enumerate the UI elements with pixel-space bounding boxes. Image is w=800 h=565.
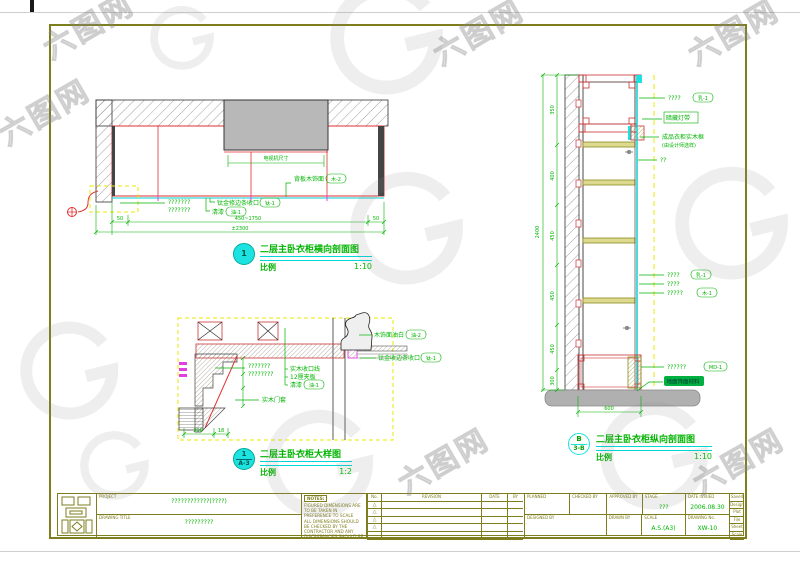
d3-leaders bbox=[637, 98, 665, 391]
d1-dim-total: ±2300 bbox=[232, 226, 249, 232]
d3-label-r1: ???? bbox=[668, 95, 681, 102]
d2-label-white-paint: 木饰面油白 bbox=[374, 331, 404, 339]
d2-label-door-frame: 实木门套 bbox=[262, 396, 286, 404]
rev-col-by: BY bbox=[507, 494, 523, 502]
cabinet-shelves bbox=[583, 142, 635, 303]
d2-lumber-xbox bbox=[198, 322, 278, 340]
designed-by-label: DESIGNED BY bbox=[525, 515, 606, 520]
d2-label-titanium: 钛金收边条收口 bbox=[378, 354, 420, 362]
stage-value: ??? bbox=[643, 505, 685, 511]
d1-bubble-number: 1 bbox=[241, 250, 247, 258]
d1-label-q1: ??????? bbox=[168, 199, 190, 206]
meta-row-5: Sheet bbox=[730, 524, 744, 532]
page-bottom-edge bbox=[0, 551, 800, 552]
drawing-3-vertical-section: 2400 350 400 450 450 450 300 ???? 乳-1 暗藏… bbox=[525, 60, 775, 480]
planned-label: PLANNED bbox=[525, 494, 569, 499]
company-logo bbox=[58, 494, 96, 537]
drawing-1-horizontal-section: 电视机尺寸 ??????? ??????? 钛金修边条收口 钛-1 清漆 油-1… bbox=[60, 95, 400, 265]
checked-label: CHECKED BY bbox=[570, 494, 606, 499]
d2-title-underline bbox=[260, 461, 352, 466]
d3-label-r8: ?????? bbox=[667, 364, 686, 371]
d3-label-floor-finish: 地面饰面材料 bbox=[667, 378, 701, 386]
d3-bubble-ref: 3-B bbox=[573, 446, 584, 452]
meta-row-4: File No. bbox=[730, 517, 744, 525]
project-value: ????????????(????) bbox=[97, 499, 301, 505]
fold-mark bbox=[30, 0, 34, 12]
d2-wall-lines bbox=[333, 318, 345, 440]
d3-label-r7: ????? bbox=[667, 290, 683, 297]
rev-col-revision: REVISION bbox=[381, 494, 481, 502]
meta-row-1: Saved By bbox=[730, 494, 744, 502]
rev-col-date: DATE bbox=[481, 494, 507, 502]
d3-dim-seg2: 400 bbox=[550, 171, 556, 181]
notes-label: NOTES: bbox=[304, 495, 327, 502]
meta-row-6: Scale bbox=[730, 532, 744, 540]
d2-tag-white-paint: 油-2 bbox=[411, 332, 421, 339]
d1-dim-left: 50 bbox=[117, 216, 123, 222]
d3-title-underline bbox=[596, 446, 712, 451]
d3-label-light: 暗藏灯带 bbox=[666, 114, 690, 122]
d2-tag-lacquer: 油-1 bbox=[309, 382, 319, 389]
file-meta-rows: Saved By Design Plot Date File No. Sheet… bbox=[729, 494, 744, 537]
d1-scale-value: 1:10 bbox=[354, 262, 372, 273]
d3-dim-seg5: 450 bbox=[550, 344, 556, 354]
date-issued-label: DATE ISSUED bbox=[686, 494, 729, 499]
d1-title-text: 二层主卧衣柜横向剖面图 bbox=[260, 242, 372, 255]
meta-row-2: Design bbox=[730, 502, 744, 510]
cad-sheet: 电视机尺寸 ??????? ??????? 钛金修边条收口 钛-1 清漆 油-1… bbox=[0, 0, 800, 565]
d2-dim-b: 18 bbox=[218, 428, 224, 434]
notes-cell: NOTES: FIGURED DIMENSIONS ARE TO BE TAKE… bbox=[301, 494, 366, 537]
d3-label-r6: ???? bbox=[667, 281, 680, 288]
d2-door-jamb-steps bbox=[179, 354, 237, 432]
d2-label-lacquer: 清漆 bbox=[290, 381, 302, 389]
d3-scale-label: 比例 bbox=[596, 452, 612, 463]
d2-bubble-ref: A-3 bbox=[238, 461, 249, 467]
title-block: PROJECT ????????????(????) DRAWING TITLE… bbox=[57, 493, 744, 536]
d1-tag-back-panel: 木-2 bbox=[331, 176, 341, 183]
d1-tag-titanium: 钛-1 bbox=[265, 200, 275, 207]
d3-tag-r5: 乳-1 bbox=[696, 272, 706, 279]
d1-scale-label: 比例 bbox=[260, 262, 276, 273]
page-top-edge bbox=[0, 12, 800, 13]
drawing-no-value: XW-10 bbox=[686, 526, 729, 532]
rev-mark-3: △ bbox=[367, 517, 381, 525]
concealed-light-block bbox=[628, 126, 644, 140]
d3-title: 二层主卧衣柜纵向剖面图 比例 1:10 bbox=[596, 432, 712, 463]
rev-mark-2: △ bbox=[367, 509, 381, 517]
d1-label-back-panel: 背板木饰面 bbox=[294, 175, 324, 183]
rev-col-no: No. bbox=[367, 494, 381, 502]
rev-mark-1: △ bbox=[367, 502, 381, 510]
d3-label-r5: ???? bbox=[667, 272, 680, 279]
note-2: ALL DIMENSIONS SHOULD BE CHECKED BY THE … bbox=[304, 519, 364, 537]
d3-dim-total: 2400 bbox=[535, 226, 541, 239]
drawing-title-value: ????????? bbox=[97, 520, 301, 526]
d1-dim-right: 50 bbox=[373, 216, 379, 222]
d3-title-bubble: B 3-B bbox=[568, 433, 590, 455]
stage-label: STAGE bbox=[643, 494, 685, 499]
drawing-2-detail: ??????? ???????? 实木门套 实木收口线 12厘夹板 清漆 油-1… bbox=[165, 310, 465, 455]
d2-dim-a: 206 bbox=[193, 428, 203, 434]
d1-tag-lacquer: 油-1 bbox=[231, 209, 241, 216]
d1-title-underline bbox=[260, 256, 372, 261]
tv-niche bbox=[224, 100, 328, 152]
d2-label-trim: 实木收口线 bbox=[290, 365, 320, 373]
section-cut-symbol bbox=[68, 208, 77, 217]
drawn-by-label: DRAWN BY bbox=[607, 515, 641, 520]
d2-scale-label: 比例 bbox=[260, 467, 276, 478]
d1-dim-mid: 450~1750 bbox=[235, 216, 261, 222]
d3-label-wardrobe-frame: 成品衣柜实木框 bbox=[662, 133, 704, 141]
niche-dim-label: 电视机尺寸 bbox=[263, 155, 288, 162]
d2-title: 二层主卧衣柜大样图 比例 1:2 bbox=[260, 447, 352, 478]
d3-dim-seg6: 300 bbox=[550, 376, 556, 386]
d1-label-titanium: 钛金修边条收口 bbox=[217, 199, 259, 207]
d3-tag-r1: 乳-1 bbox=[698, 95, 708, 102]
d3-tag-r7: 木-1 bbox=[702, 290, 712, 297]
scale-value: A.S.(A3) bbox=[642, 526, 684, 532]
rev-mark-4: △ bbox=[367, 524, 381, 532]
d2-title-text: 二层主卧衣柜大样图 bbox=[260, 447, 352, 460]
scale-label: SCALE bbox=[642, 515, 684, 520]
d3-dim-seg3: 450 bbox=[550, 231, 556, 241]
d2-moulding-profile bbox=[341, 313, 372, 350]
staff-grid: PLANNED CHECKED BY APPROVED BY STAGE ???… bbox=[524, 494, 729, 537]
floor-slab bbox=[545, 390, 700, 406]
meta-row-3: Plot Date bbox=[730, 509, 744, 517]
d3-dim-bottom: 600 bbox=[604, 406, 614, 412]
base-front-skirting bbox=[628, 357, 641, 388]
d2-label-q2: ???????? bbox=[248, 371, 273, 378]
date-issued-value: 2006.08.30 bbox=[686, 505, 729, 511]
d2-bubble-number: 1 bbox=[242, 451, 247, 458]
d1-title-bubble: 1 bbox=[233, 243, 255, 265]
d3-dim-seg1: 350 bbox=[550, 105, 556, 115]
cabinet-crown bbox=[579, 75, 641, 132]
d3-scale-value: 1:10 bbox=[694, 452, 712, 463]
d3-title-text: 二层主卧衣柜纵向剖面图 bbox=[596, 432, 712, 445]
drawing-no-label: DRAWING No. bbox=[686, 515, 729, 520]
approved-label: APPROVED BY bbox=[607, 494, 641, 499]
d3-label-r4: ?? bbox=[660, 157, 666, 164]
d1-title: 二层主卧衣柜横向剖面图 比例 1:10 bbox=[260, 242, 372, 273]
d2-tag-titanium: 钛-1 bbox=[426, 355, 436, 362]
crown-cyan-cap bbox=[637, 75, 642, 83]
d3-dim-seg4: 450 bbox=[550, 291, 556, 301]
d2-title-bubble: 1 A-3 bbox=[233, 448, 255, 470]
d3-tag-r8: MD-1 bbox=[709, 365, 722, 371]
project-cell: PROJECT ????????????(????) DRAWING TITLE… bbox=[96, 494, 301, 537]
d1-label-q2: ??????? bbox=[168, 207, 190, 214]
d2-label-q1: ??????? bbox=[248, 363, 270, 370]
d1-label-lacquer: 清漆 bbox=[212, 208, 224, 216]
d2-scale-value: 1:2 bbox=[339, 467, 352, 478]
revisions-table: No. REVISION DATE BY △ △ △ △ bbox=[366, 494, 524, 537]
d3-label-wardrobe-frame2: (由设计师选样) bbox=[662, 142, 696, 149]
d3-bubble-letter: B bbox=[576, 436, 581, 443]
note-1: FIGURED DIMENSIONS ARE TO BE TAKEN IN PR… bbox=[304, 503, 364, 518]
